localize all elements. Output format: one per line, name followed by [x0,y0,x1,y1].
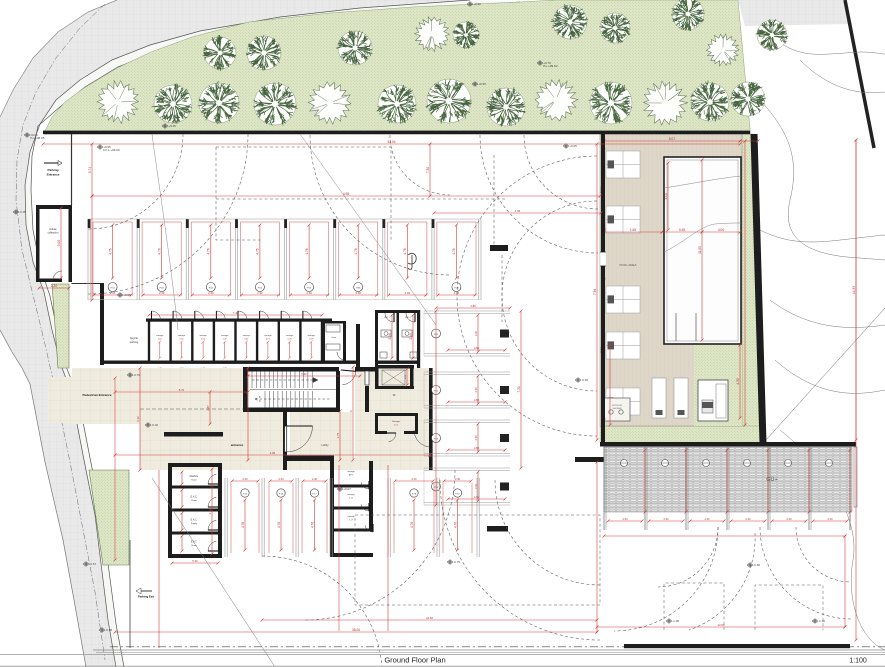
svg-text:Supply: Supply [191,523,198,525]
svg-text:SHOWER: SHOWER [613,408,623,410]
svg-text:4.76: 4.76 [452,248,456,254]
svg-text:Storage: Storage [392,420,400,423]
svg-text:parking: parking [130,340,139,344]
svg-text:3.10: 3.10 [664,193,668,199]
svg-text:4.80: 4.80 [474,398,480,402]
svg-text:-1.02: -1.02 [818,619,825,623]
svg-text:0.45: 0.45 [679,228,685,232]
svg-text:2.40: 2.40 [622,517,628,521]
svg-text:-0.45: -0.45 [581,378,588,382]
svg-text:2.87: 2.87 [206,405,210,411]
svg-text:+0.45: +0.45 [168,124,176,128]
svg-text:38.06: 38.06 [352,628,360,632]
svg-text:2.95: 2.95 [388,333,392,339]
svg-text:2.40: 2.40 [745,517,751,521]
svg-text:Room: Room [191,500,197,502]
svg-text:2.30: 2.30 [306,291,312,295]
svg-text:2.95: 2.95 [409,333,413,339]
svg-text:5.70: 5.70 [179,388,185,392]
svg-text:4.98: 4.98 [343,192,349,196]
svg-text:5.00: 5.00 [57,240,61,246]
svg-text:Parking: Parking [47,168,58,172]
svg-text:F.F.L.+99.00: F.F.L.+99.00 [103,148,120,152]
svg-text:4.76: 4.76 [354,248,358,254]
svg-text:6.40: 6.40 [208,508,212,514]
svg-text:P.L.+98.95: P.L.+98.95 [30,136,45,140]
svg-text:4.76: 4.76 [277,522,281,528]
svg-text:2.40: 2.40 [827,517,833,521]
svg-text:2.30: 2.30 [355,291,361,295]
svg-text:+0.07: +0.07 [343,487,351,491]
svg-text:+0.90: +0.90 [473,2,481,6]
svg-text:storage: storage [347,515,355,518]
svg-text:5.74: 5.74 [88,167,92,173]
svg-text:lift: lift [393,393,396,397]
svg-text:7.30: 7.30 [426,167,430,173]
svg-text:2.40: 2.40 [455,477,461,481]
svg-text:14.33: 14.33 [852,286,856,294]
svg-text:2.30: 2.30 [405,291,411,295]
svg-text:refuse: refuse [49,227,57,231]
svg-text:4.76: 4.76 [256,248,260,254]
svg-text:4.76: 4.76 [403,248,407,254]
svg-text:4.80: 4.80 [474,446,480,450]
svg-text:storage: storage [347,470,355,473]
svg-text:storage: storage [286,334,294,337]
svg-text:5.30: 5.30 [192,559,198,563]
svg-text:3.75: 3.75 [336,432,340,438]
svg-text:7.36: 7.36 [593,289,597,295]
svg-text:2.30: 2.30 [208,291,214,295]
svg-text:1:100: 1:100 [849,658,867,665]
svg-text:2.20: 2.20 [51,284,57,288]
svg-text:storage: storage [347,493,355,496]
svg-text:4.76: 4.76 [310,522,314,528]
svg-text:4.76: 4.76 [241,522,245,528]
svg-text:2.40: 2.40 [786,517,792,521]
svg-text:2.40: 2.40 [312,477,318,481]
svg-text:7.40: 7.40 [233,311,239,315]
svg-text:storage: storage [264,334,272,337]
svg-text:4.96: 4.96 [515,209,521,213]
svg-text:4.76: 4.76 [207,248,211,254]
svg-text:storage: storage [199,334,207,337]
svg-text:storage: storage [178,334,186,337]
svg-text:Machine: Machine [190,476,199,478]
svg-text:24.60: 24.60 [426,616,433,620]
svg-text:4.76: 4.76 [305,248,309,254]
svg-text:2.30: 2.30 [454,291,460,295]
svg-text:4.76: 4.76 [410,522,414,528]
svg-text:2.40: 2.40 [242,477,248,481]
svg-text:bicycle: bicycle [130,336,138,340]
svg-text:4.00: 4.00 [718,228,724,232]
svg-text:8.07: 8.07 [669,137,675,141]
svg-text:2.40: 2.40 [704,517,710,521]
svg-text:-0.60: -0.60 [753,563,760,567]
svg-text:2.30: 2.30 [110,291,116,295]
svg-text:storage: storage [221,334,229,337]
svg-text:-0.05: -0.05 [19,210,26,214]
svg-text:POOL AREA: POOL AREA [619,263,636,267]
svg-text:-0.70: -0.70 [133,373,140,377]
svg-text:storage: storage [156,334,164,337]
svg-text:P.L.+99.60: P.L.+99.60 [543,64,558,68]
svg-text:2.30: 2.30 [159,291,165,295]
svg-text:Pedestrian Entrance: Pedestrian Entrance [82,393,111,397]
svg-text:2.40: 2.40 [411,477,417,481]
svg-text:clean.: clean. [331,337,337,339]
svg-text:E.A.C.: E.A.C. [191,519,198,522]
svg-text:+0.05: +0.05 [569,144,577,148]
svg-text:storage: storage [308,334,316,337]
svg-text:+0.35: +0.35 [478,82,486,86]
svg-text:1.65: 1.65 [630,228,636,232]
svg-text:-0.75: -0.75 [453,560,460,564]
svg-text:Room: Room [191,480,197,482]
svg-text:Ground Floor Plan: Ground Floor Plan [384,656,445,665]
svg-text:-0.02: -0.02 [151,423,158,427]
svg-text:4.76: 4.76 [108,248,112,254]
svg-text:Lobby: Lobby [321,443,329,447]
svg-text:2.30: 2.30 [474,387,478,393]
svg-text:4.76: 4.76 [453,522,457,528]
svg-text:-0.98: -0.98 [105,628,112,632]
svg-text:WC 2: WC 2 [405,317,411,319]
svg-text:+0.05: +0.05 [123,293,131,297]
svg-text:GÜ+: GÜ+ [766,476,777,483]
svg-text:Parking Exit: Parking Exit [138,595,154,599]
svg-text:2.40: 2.40 [663,517,669,521]
svg-text:4.80: 4.80 [470,304,476,308]
svg-text:Entrance: Entrance [47,173,60,177]
svg-text:11.05: 11.05 [698,246,702,254]
svg-text:4.95: 4.95 [270,451,276,455]
svg-text:5.40: 5.40 [301,372,307,376]
svg-text:2.30: 2.30 [474,330,478,336]
svg-text:E.A.C.: E.A.C. [191,496,198,499]
svg-text:storage: storage [243,334,251,337]
svg-text:4.76: 4.76 [158,248,162,254]
svg-text:collection: collection [48,231,59,235]
svg-text:7.30: 7.30 [517,386,521,392]
svg-text:52.04: 52.04 [388,140,396,144]
svg-text:OUTDOOR: OUTDOOR [612,405,623,407]
svg-text:entrance: entrance [231,443,244,447]
svg-text:-1.05: -1.05 [672,619,679,623]
svg-text:4.30: 4.30 [736,378,740,384]
svg-text:2.30: 2.30 [257,291,263,295]
svg-text:-0.67: -0.67 [89,562,96,566]
svg-text:13.66: 13.66 [718,623,725,627]
svg-text:2.40: 2.40 [278,477,284,481]
svg-text:5.10: 5.10 [136,416,140,422]
svg-text:4.80: 4.80 [474,346,480,350]
svg-text:WC 1: WC 1 [384,317,390,319]
svg-text:2.30: 2.30 [474,435,478,441]
